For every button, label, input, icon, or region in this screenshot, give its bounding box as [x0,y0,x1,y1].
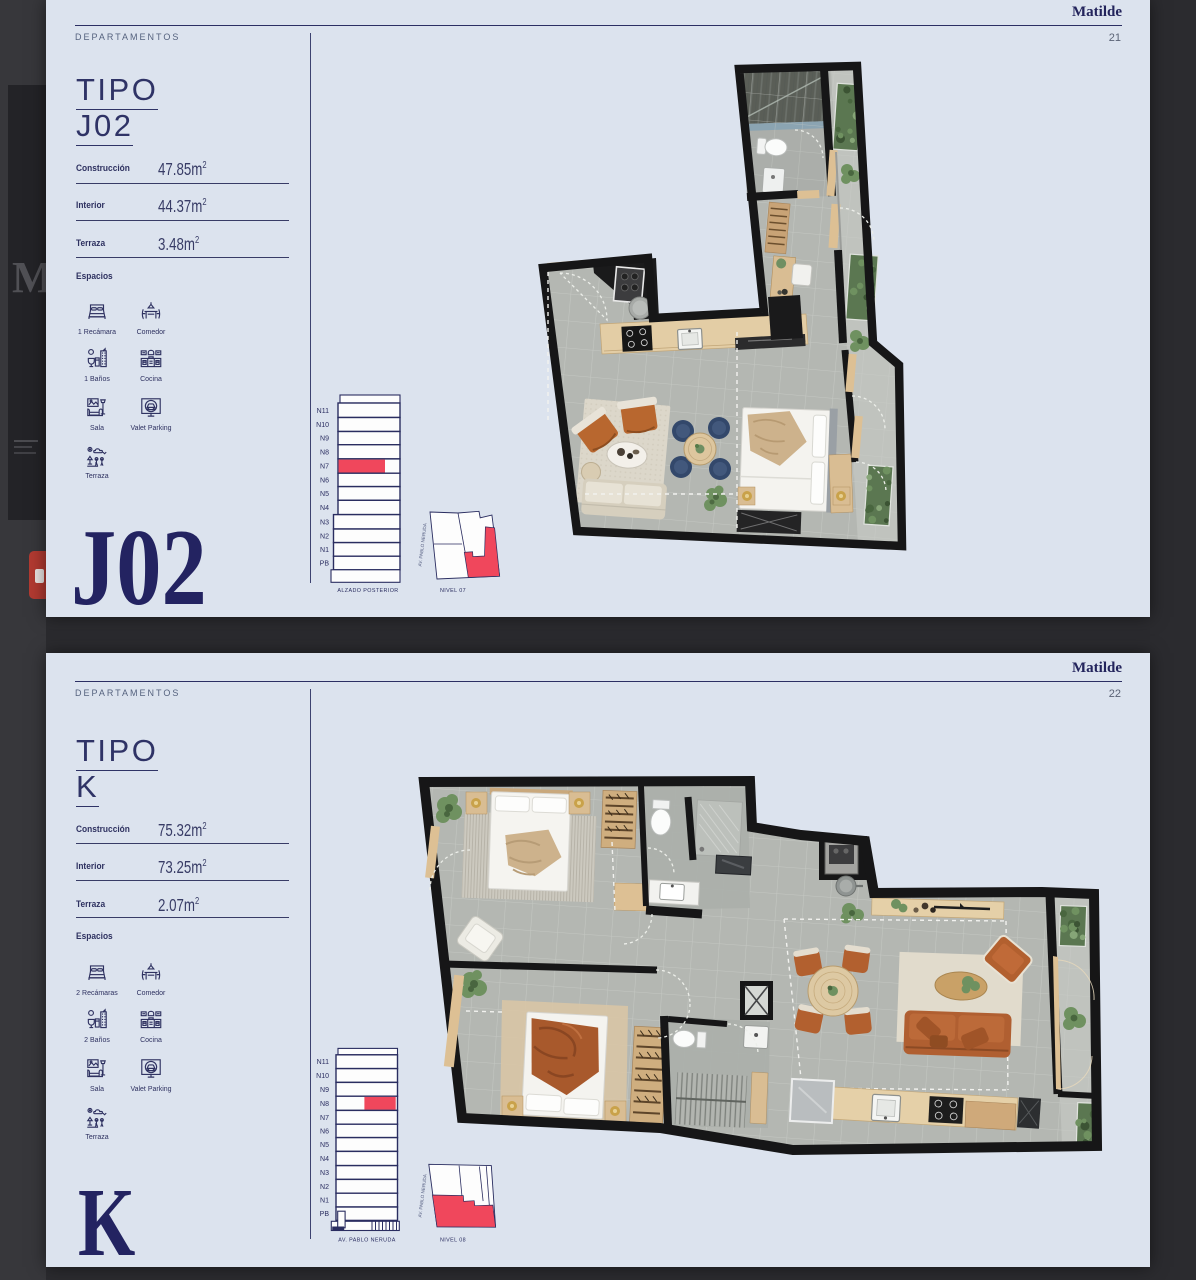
svg-text:AV. PABLO NERUDA: AV. PABLO NERUDA [338,1238,396,1244]
svg-text:N4: N4 [320,505,329,512]
svg-text:N7: N7 [320,1115,329,1122]
svg-text:N2: N2 [320,1184,329,1191]
svg-text:N9: N9 [320,1087,329,1094]
svg-text:PB: PB [320,1211,330,1218]
svg-text:NIVEL 08: NIVEL 08 [440,1238,466,1244]
svg-text:N10: N10 [316,1073,329,1080]
svg-text:PB: PB [320,561,330,568]
svg-text:AV. PABLO NERUDA: AV. PABLO NERUDA [417,522,427,567]
svg-text:N2: N2 [320,533,329,540]
svg-text:N9: N9 [320,436,329,443]
svg-text:N11: N11 [317,408,329,415]
svg-text:N6: N6 [320,477,329,484]
svg-text:N7: N7 [320,464,329,471]
svg-text:N8: N8 [320,449,329,456]
svg-text:AV. PABLO NERUDA: AV. PABLO NERUDA [417,1173,427,1218]
svg-text:N11: N11 [317,1059,329,1066]
svg-text:N3: N3 [320,519,329,526]
svg-text:N8: N8 [320,1101,329,1108]
svg-text:NIVEL 07: NIVEL 07 [440,588,466,594]
svg-text:N5: N5 [320,491,329,498]
svg-text:N6: N6 [320,1128,329,1135]
svg-text:N5: N5 [320,1142,329,1149]
svg-text:N1: N1 [320,547,329,554]
svg-text:N4: N4 [320,1156,329,1163]
svg-text:N3: N3 [320,1170,329,1177]
svg-text:N10: N10 [316,422,329,429]
svg-text:ALZADO POSTERIOR: ALZADO POSTERIOR [337,588,398,594]
svg-text:N1: N1 [320,1198,329,1205]
